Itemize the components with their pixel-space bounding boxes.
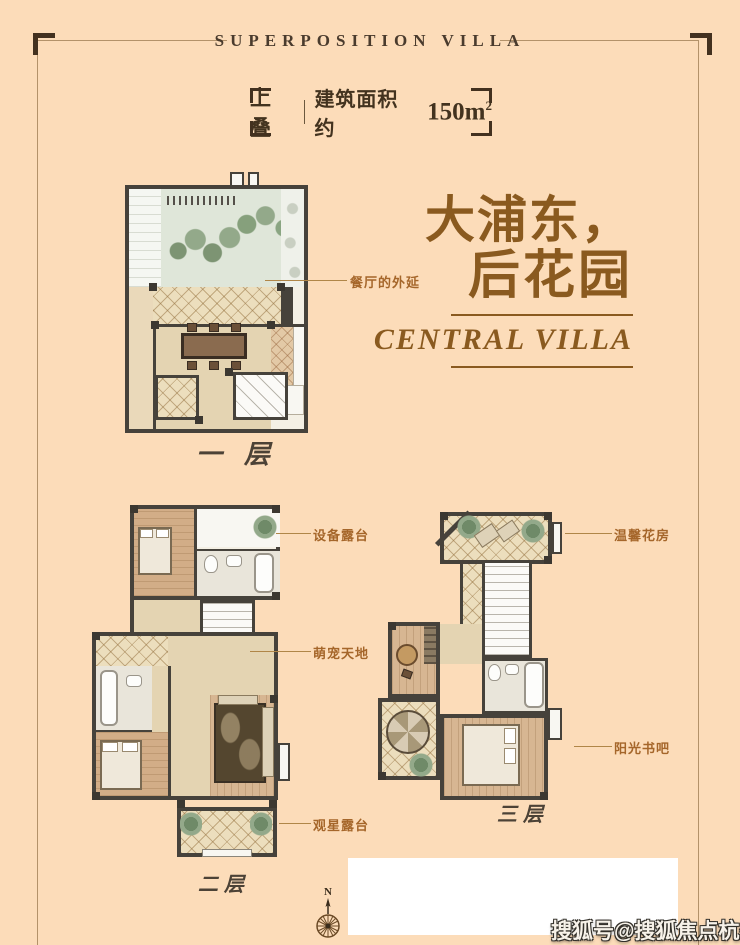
leader-line bbox=[279, 823, 311, 824]
floor1-kitchen-counter bbox=[293, 327, 304, 385]
terrace-plant bbox=[408, 752, 434, 778]
sink bbox=[226, 555, 242, 567]
frame-right-line bbox=[698, 40, 699, 945]
sofa bbox=[218, 695, 258, 705]
terrace-plant bbox=[250, 811, 272, 837]
wall bbox=[168, 666, 171, 796]
pillow bbox=[156, 529, 169, 538]
column bbox=[267, 321, 275, 329]
floor1-dining-label: 餐厅的外延 bbox=[350, 272, 420, 291]
column bbox=[130, 505, 138, 513]
floor2-balcony-tile bbox=[96, 636, 168, 666]
floor2-terrace-plant bbox=[252, 511, 278, 543]
floor3-bay-window bbox=[548, 708, 562, 740]
badge-corner-mark bbox=[471, 88, 492, 103]
watermark: 搜狐号@搜狐焦点杭州站 bbox=[551, 915, 740, 945]
floor3-sun-label: 阳光书吧 bbox=[614, 738, 670, 757]
floor1-stone-path bbox=[281, 189, 304, 287]
dining-chair bbox=[187, 323, 197, 332]
dining-chair bbox=[209, 361, 219, 370]
column bbox=[92, 632, 100, 640]
column bbox=[272, 592, 280, 600]
floor1-patio-tile bbox=[155, 375, 199, 420]
dining-chair bbox=[231, 323, 241, 332]
pillow bbox=[122, 742, 138, 752]
compass-rose-icon bbox=[314, 898, 342, 940]
pillow bbox=[504, 748, 516, 764]
floor3-plan bbox=[378, 512, 575, 800]
column bbox=[544, 556, 552, 564]
badge-content: 上叠 建筑面积约 150m2 bbox=[250, 88, 492, 136]
column bbox=[388, 622, 396, 630]
leader-line bbox=[565, 533, 612, 534]
floor3-landing bbox=[440, 624, 482, 664]
area-badge: 上叠 建筑面积约 150m2 bbox=[250, 88, 492, 136]
pillow bbox=[504, 728, 516, 744]
area-label: 建筑面积约 bbox=[314, 83, 418, 141]
flower-house-plant bbox=[518, 516, 548, 546]
terrace-railing bbox=[202, 849, 252, 857]
sink bbox=[126, 675, 142, 687]
pillow bbox=[102, 742, 118, 752]
floor2-caption: 二层 bbox=[198, 868, 250, 897]
floor1-dining-table bbox=[181, 333, 247, 359]
sink bbox=[505, 664, 519, 675]
bathtub bbox=[254, 553, 274, 593]
column bbox=[269, 800, 277, 808]
floor3-flower-label: 温馨花房 bbox=[614, 525, 670, 544]
headline-subtitle: CENTRAL VILLA bbox=[374, 323, 633, 357]
floor3-caption: 三层 bbox=[497, 798, 549, 827]
column bbox=[272, 505, 280, 513]
floor1-plan bbox=[125, 172, 315, 433]
floor2-plan bbox=[92, 505, 297, 860]
dining-chair bbox=[187, 361, 197, 370]
headline-line1: 大浦东， bbox=[374, 194, 633, 247]
floor2-pet-label: 萌宠天地 bbox=[313, 643, 369, 662]
floor1-side-hall bbox=[129, 287, 153, 429]
bathtub bbox=[524, 662, 544, 708]
toilet bbox=[488, 664, 501, 681]
floor3-window-tab bbox=[552, 522, 562, 554]
floor2-living-rug bbox=[214, 703, 266, 783]
leader-line bbox=[250, 651, 311, 652]
badge-corner-mark bbox=[250, 121, 271, 136]
badge-divider bbox=[304, 100, 305, 124]
floor1-terrace-tile bbox=[153, 287, 281, 325]
compass: N bbox=[312, 886, 344, 945]
badge-corner-mark bbox=[471, 121, 492, 136]
headline-rule-bottom bbox=[451, 366, 633, 368]
floor2-corridor bbox=[130, 600, 200, 635]
floor2-equipment-label: 设备露台 bbox=[313, 525, 369, 544]
floor3-stairs bbox=[482, 560, 532, 658]
floor3-round-table bbox=[396, 644, 418, 666]
column bbox=[92, 792, 100, 800]
column bbox=[177, 800, 185, 808]
leader-line bbox=[574, 746, 612, 747]
leader-line bbox=[276, 533, 311, 534]
toilet bbox=[204, 555, 218, 573]
column bbox=[225, 368, 233, 376]
floor1-garden-path bbox=[129, 189, 161, 287]
badge-corner-mark bbox=[250, 88, 271, 103]
frame-left-line bbox=[37, 40, 38, 945]
pillow bbox=[140, 529, 153, 538]
column bbox=[195, 416, 203, 424]
floor1-stairs bbox=[233, 372, 288, 420]
column bbox=[277, 283, 285, 291]
floor2-star-label: 观星露台 bbox=[313, 815, 369, 834]
page-title: SUPERPOSITION VILLA bbox=[0, 31, 740, 51]
column bbox=[378, 772, 386, 780]
headline-rule-top bbox=[451, 314, 633, 316]
floor1-caption: 一层 bbox=[196, 434, 292, 471]
floor2-bay-window bbox=[278, 743, 290, 781]
column bbox=[149, 283, 157, 291]
column bbox=[151, 321, 159, 329]
compass-north-letter: N bbox=[312, 886, 344, 898]
sofa bbox=[262, 707, 274, 777]
column bbox=[544, 512, 552, 520]
poster-page: SUPERPOSITION VILLA 上叠 建筑面积约 150m2 大浦东， … bbox=[0, 0, 740, 945]
leader-line bbox=[265, 280, 347, 281]
floor3-bookshelf bbox=[424, 626, 436, 664]
dining-chair bbox=[209, 323, 219, 332]
terrace-plant bbox=[180, 811, 202, 837]
floor1-planter bbox=[281, 287, 293, 325]
column bbox=[270, 695, 278, 703]
floor3-umbrella bbox=[386, 710, 430, 754]
column bbox=[440, 512, 448, 520]
bathtub bbox=[100, 670, 118, 726]
